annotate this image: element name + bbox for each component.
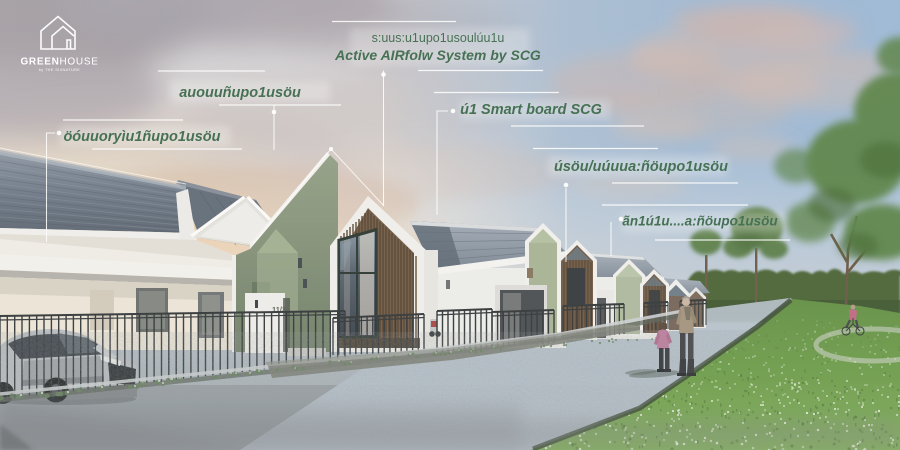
svg-text:GREENHOUSE: GREENHOUSE [20,57,98,68]
svg-text:by THE SIXNATURE: by THE SIXNATURE [39,68,81,72]
